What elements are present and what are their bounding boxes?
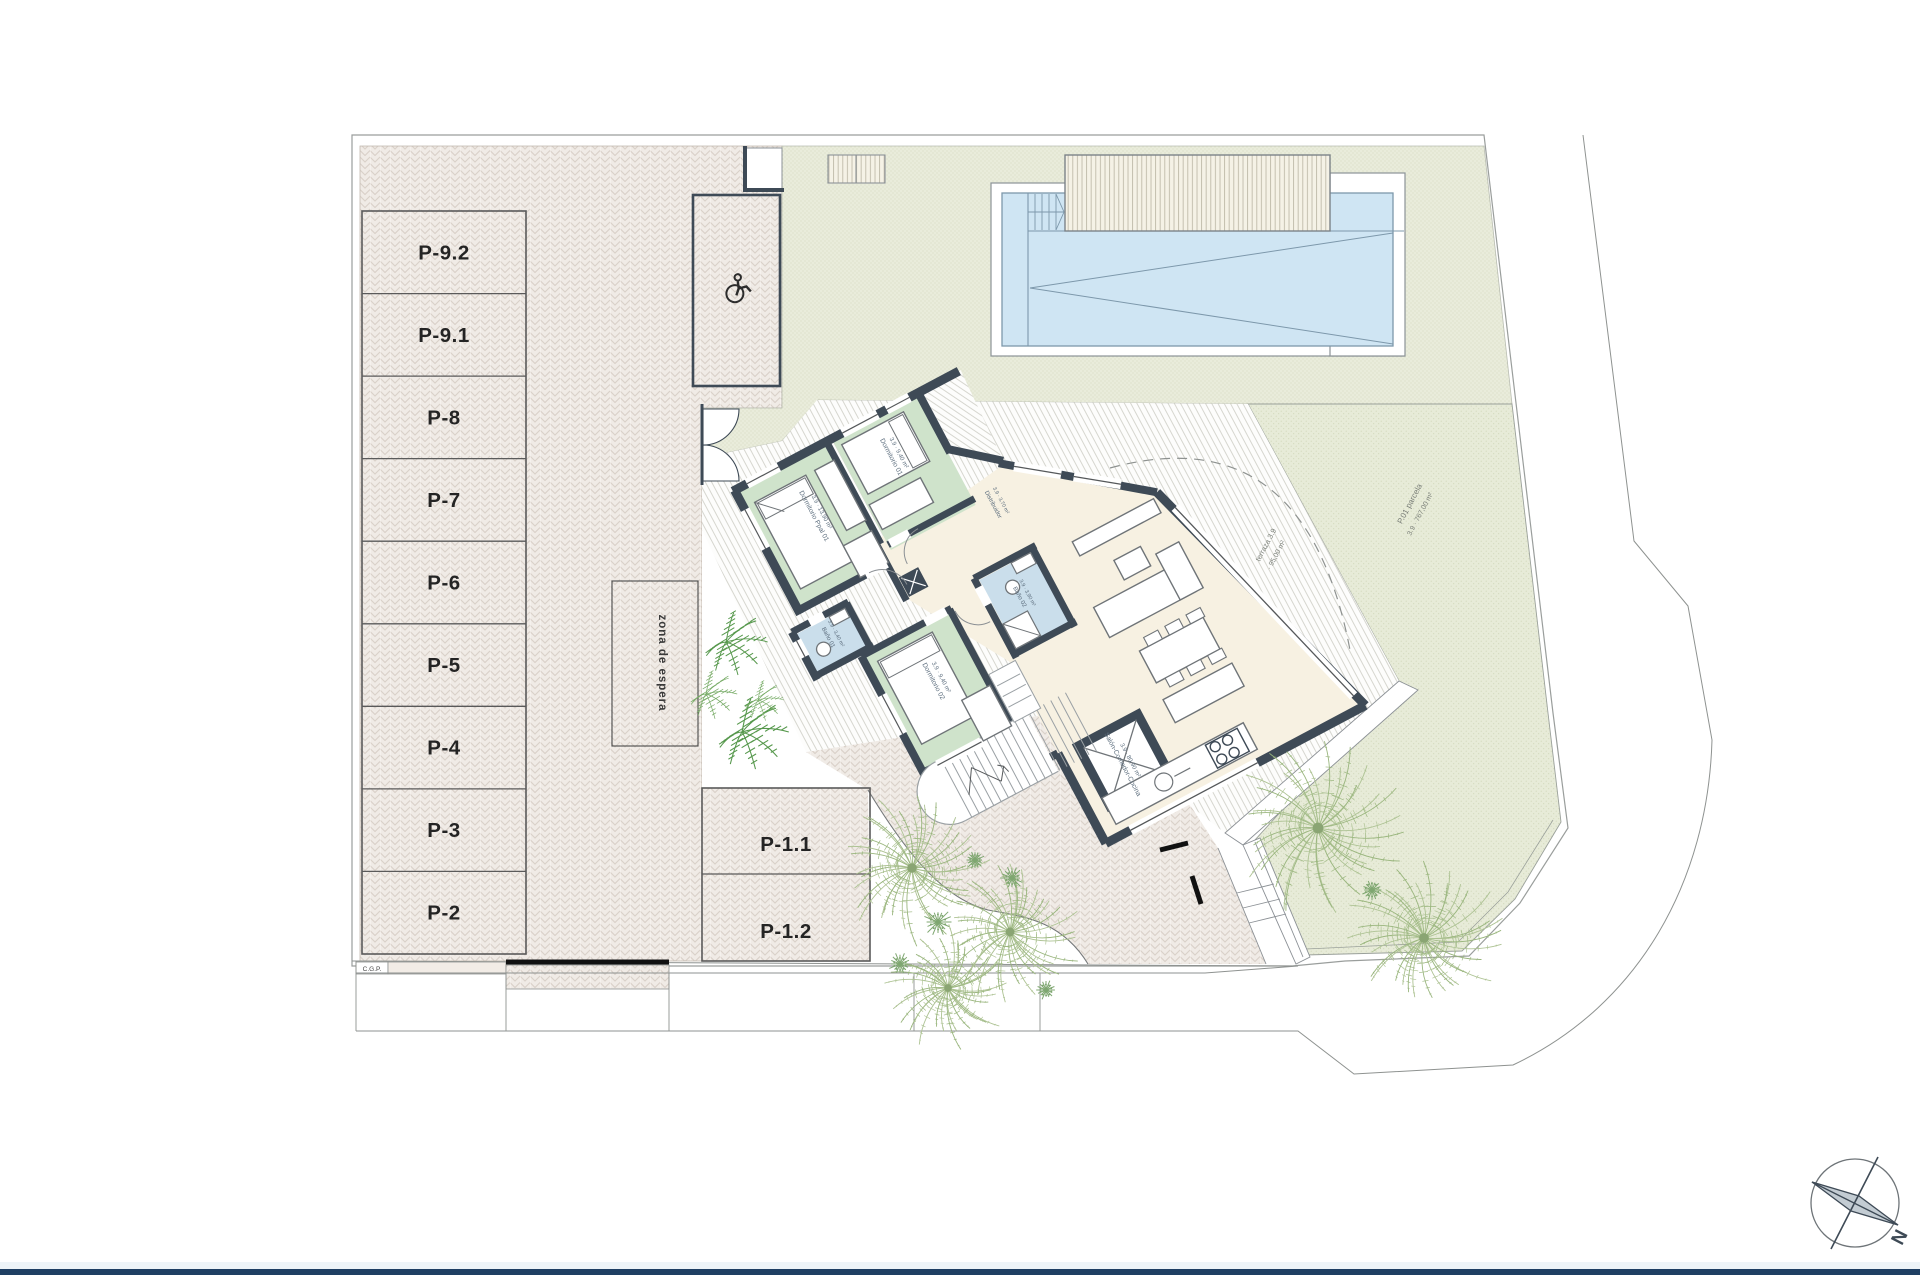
- svg-text:P-9.2: P-9.2: [418, 241, 470, 264]
- svg-text:P-6: P-6: [427, 571, 460, 594]
- svg-text:P-5: P-5: [427, 654, 460, 677]
- svg-text:P-1.2: P-1.2: [760, 920, 812, 943]
- svg-text:P-8: P-8: [427, 406, 460, 429]
- svg-text:P-3: P-3: [427, 819, 460, 842]
- svg-text:P-1.1: P-1.1: [760, 833, 812, 856]
- svg-text:P-7: P-7: [427, 489, 460, 512]
- svg-text:P-9.1: P-9.1: [418, 324, 470, 347]
- svg-text:zona de espera: zona de espera: [656, 614, 668, 711]
- svg-text:P-2: P-2: [427, 902, 460, 925]
- svg-text:P-4: P-4: [427, 737, 461, 760]
- svg-text:N: N: [1888, 1227, 1913, 1249]
- svg-text:C.G.P.: C.G.P.: [363, 966, 382, 973]
